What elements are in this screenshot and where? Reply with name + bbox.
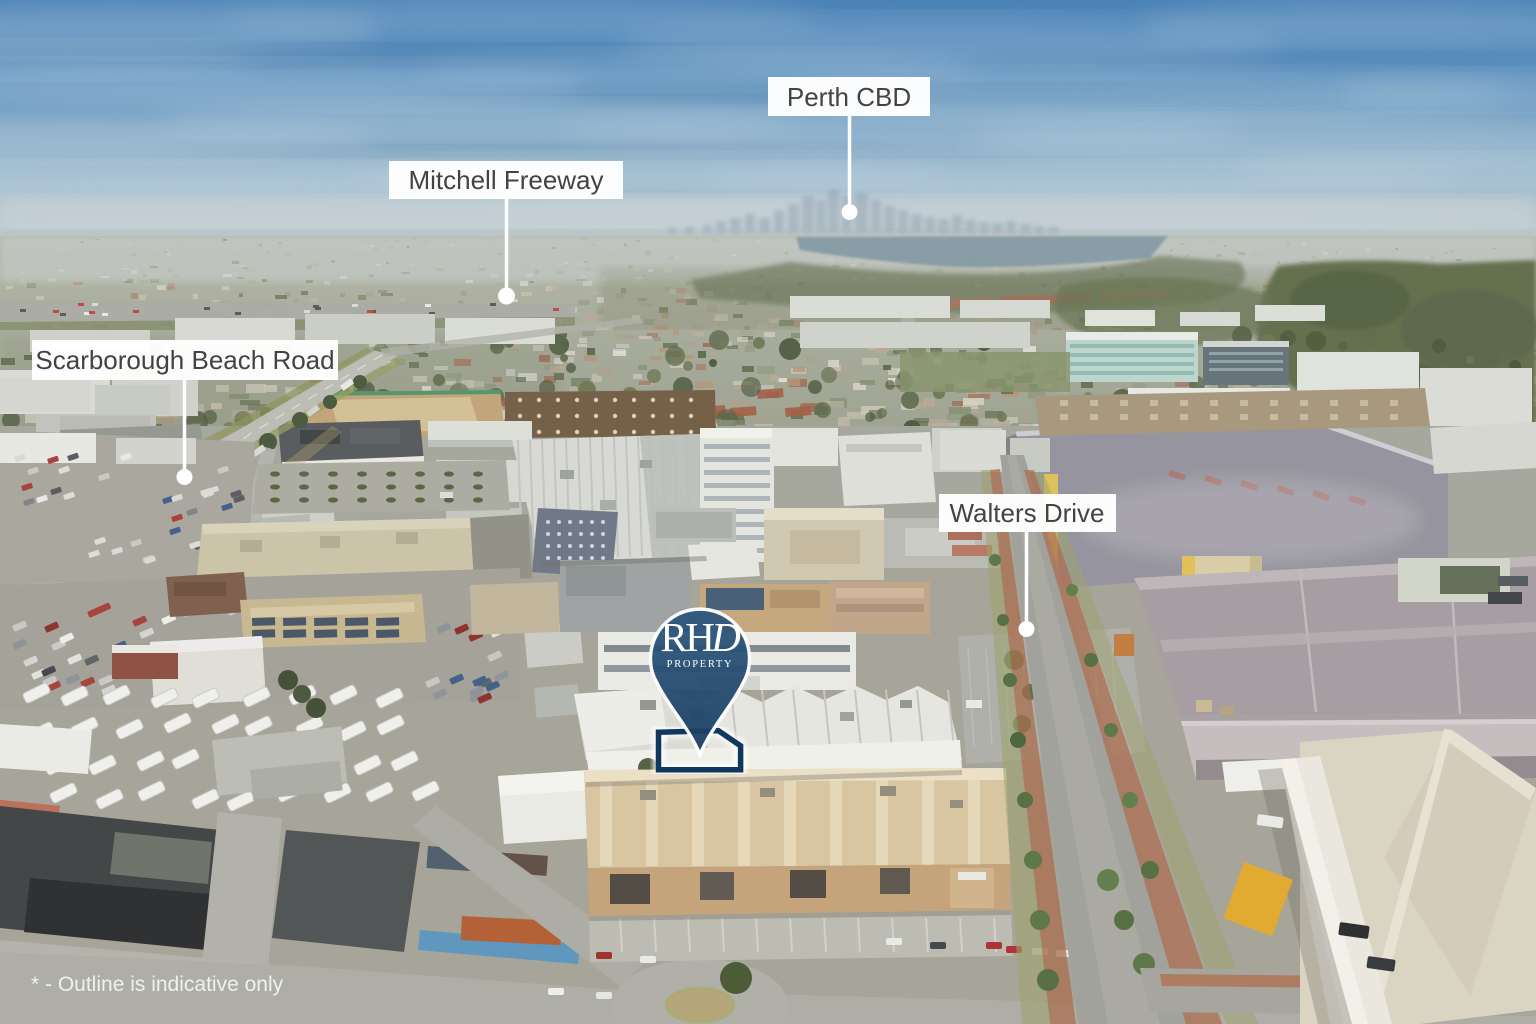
svg-text:* - Outline is indicative only: * - Outline is indicative only — [31, 973, 284, 996]
svg-text:R: R — [660, 614, 688, 660]
svg-text:Scarborough Beach Road: Scarborough Beach Road — [35, 345, 334, 375]
svg-text:Mitchell Freeway: Mitchell Freeway — [408, 165, 603, 195]
svg-text:Walters Drive: Walters Drive — [949, 498, 1104, 528]
svg-text:D: D — [710, 614, 741, 660]
svg-text:PROPERTY: PROPERTY — [667, 659, 734, 670]
svg-text:Perth CBD: Perth CBD — [787, 82, 911, 112]
